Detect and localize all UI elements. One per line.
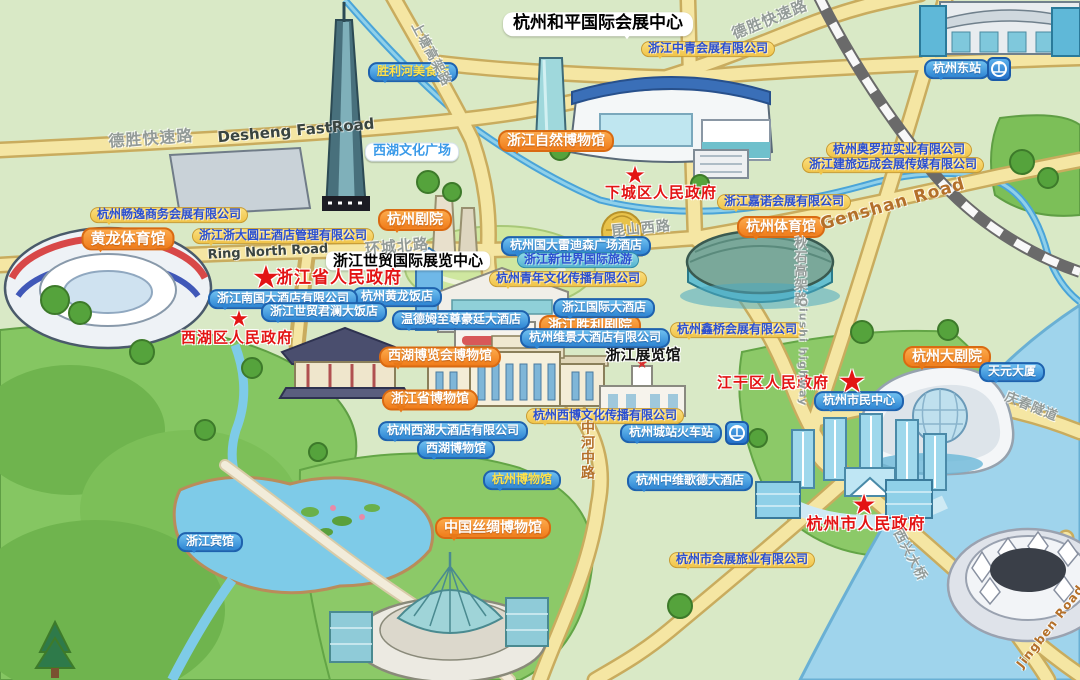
desheng-road-right: 德胜快速路 (730, 0, 811, 43)
railway-logo-icon: 工 (725, 421, 749, 445)
railway-logo-icon: 工 (987, 57, 1011, 81)
city-gov-star: ★ (851, 491, 876, 519)
xiacheng-gov-label: 下城区人民政府 (605, 184, 717, 201)
city-station-rail-icon: 工 (725, 421, 749, 445)
jianggan-gov-star: ★ (838, 365, 867, 397)
peace-expo-center-title: 杭州和平国际会展中心 (503, 12, 693, 36)
west-lake-expo-museum-label: 西湖博览会博物馆 (379, 347, 501, 368)
jianlv-media-co-label: 浙江建旅远成会展传媒有限公司 (802, 157, 984, 173)
hangzhou-expo-map: ★ (0, 0, 1080, 680)
jianuo-expo-co-label: 浙江嘉诺会展有限公司 (717, 194, 851, 210)
yellow-dragon-stadium-label: 黄龙体育馆 (81, 227, 174, 250)
weijing-hotel-label: 杭州维景大酒店有限公司 (520, 328, 670, 348)
east-station-rail-icon: 工 (987, 57, 1011, 81)
city-station-label: 杭州城站火车站 (620, 423, 722, 443)
zhongqing-expo-co-label: 浙江中青会展有限公司 (641, 41, 775, 57)
wyndham-hotel-label: 温德姆至尊豪廷大酒店 (392, 310, 530, 330)
qiushi-road-en: Qiushi highway (796, 298, 809, 407)
hangzhou-gymnasium-label: 杭州体育馆 (737, 216, 825, 238)
jingben-road: Jingben Road (1014, 583, 1080, 671)
changyi-expo-co-label: 杭州畅逸商务会展有限公司 (90, 207, 248, 223)
international-hotel-label: 浙江国际大酒店 (553, 298, 655, 318)
xibo-culture-co-label: 杭州西博文化传播有限公司 (526, 408, 684, 424)
xihu-gov-star: ★ (229, 309, 249, 331)
junlan-hotel-label: 浙江世贸君澜大饭店 (261, 302, 387, 322)
aurora-co-label: 杭州奥罗拉实业有限公司 (826, 142, 972, 158)
zhejiang-exhibition-hall-label: 浙江展览馆 (605, 346, 680, 363)
xiacheng-gov-star: ★ (624, 163, 646, 187)
new-world-travel-label: 浙江新世界国际旅游 (517, 252, 639, 268)
yuanzheng-hotel-co-label: 浙江浙大圆正酒店管理有限公司 (192, 228, 374, 244)
goethe-hotel-label: 杭州中维歌德大酒店 (627, 471, 753, 491)
hangzhou-museum-label: 杭州博物馆 (483, 470, 561, 490)
east-station-label: 杭州东站 (924, 59, 990, 79)
desheng-road-en: Desheng FastRoad (217, 116, 375, 147)
nature-museum-label: 浙江自然博物馆 (498, 130, 614, 152)
zhonghe-road: 中河中路 (579, 420, 595, 480)
tianyuan-tower-label: 天元大厦 (979, 362, 1045, 382)
xinqiao-expo-co-label: 杭州鑫桥会展有限公司 (670, 322, 804, 338)
ring-north-road-en: Ring North Road (207, 242, 328, 263)
province-gov-star: ★ (252, 261, 281, 293)
zhejiang-hotel-label: 浙江宾馆 (177, 532, 243, 552)
hangzhou-theatre-label: 杭州剧院 (378, 209, 452, 231)
grand-theatre-label: 杭州大剧院 (903, 346, 991, 368)
westlake-museum-label: 西湖博物馆 (417, 439, 495, 459)
exhibition-travel-co-label: 杭州市会展旅业有限公司 (669, 552, 815, 568)
labels-layer: 杭州和平国际会展中心浙江世贸国际展览中心浙江展览馆浙江自然博物馆杭州剧院黄龙体育… (0, 0, 1080, 680)
youth-culture-co-label: 杭州青年文化传播有限公司 (489, 271, 647, 287)
provincial-museum-label: 浙江省博物馆 (382, 390, 478, 411)
qiushi-road-cn: 秋石高架路 (791, 236, 806, 306)
jianggan-gov-label: 江干区人民政府 (717, 374, 829, 391)
qingchun-tunnel: 庆春隧道 (1002, 391, 1060, 426)
silk-museum-label: 中国丝绸博物馆 (435, 517, 551, 539)
culture-square-label: 西湖文化广场 (365, 143, 459, 162)
province-gov-label: 浙江省人民政府 (276, 269, 402, 289)
desheng-road-left: 德胜快速路 (108, 127, 194, 151)
kunshan-road: 昆山西路 (610, 218, 671, 240)
xixing-bridge: 西兴大桥 (889, 528, 928, 584)
westlake-hotel-label: 杭州西湖大酒店有限公司 (378, 421, 528, 441)
